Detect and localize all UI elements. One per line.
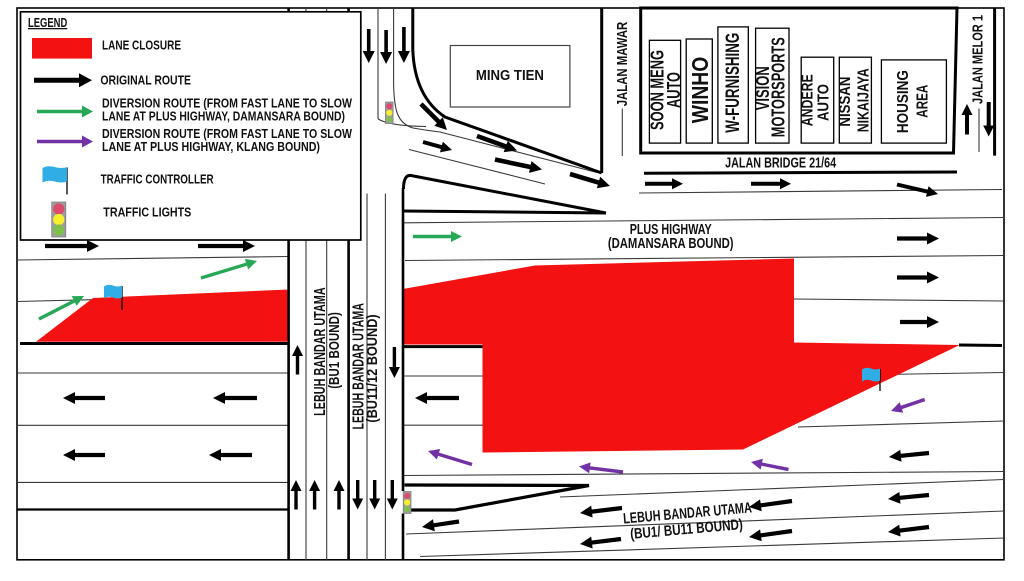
svg-text:LANE AT PLUS HIGHWAY, DAMANSAR: LANE AT PLUS HIGHWAY, DAMANSARA BOUND) bbox=[102, 110, 345, 124]
svg-text:W-FURNISHING: W-FURNISHING bbox=[722, 33, 744, 133]
svg-text:JALAN MELOR 1: JALAN MELOR 1 bbox=[970, 15, 987, 104]
svg-text:JALAN BRIDGE 21/64: JALAN BRIDGE 21/64 bbox=[725, 156, 836, 172]
svg-text:MING TIEN: MING TIEN bbox=[476, 68, 544, 84]
svg-text:NISSAN: NISSAN bbox=[837, 77, 854, 127]
svg-text:DIVERSION ROUTE (FROM FAST LAN: DIVERSION ROUTE (FROM FAST LANE TO SLOW bbox=[102, 127, 352, 141]
svg-text:TRAFFIC LIGHTS: TRAFFIC LIGHTS bbox=[103, 206, 191, 220]
svg-text:HOUSING: HOUSING bbox=[895, 70, 912, 133]
svg-text:(BU11/12 BOUND): (BU11/12 BOUND) bbox=[365, 314, 381, 422]
svg-text:(BU1 BOUND): (BU1 BOUND) bbox=[327, 312, 343, 389]
svg-text:JALAN MAWAR: JALAN MAWAR bbox=[614, 22, 631, 107]
svg-text:AREA: AREA bbox=[914, 85, 931, 118]
svg-text:AUTO: AUTO bbox=[663, 72, 684, 108]
svg-text:ORIGINAL ROUTE: ORIGINAL ROUTE bbox=[100, 73, 191, 87]
svg-text:LANE CLOSURE: LANE CLOSURE bbox=[102, 39, 181, 53]
svg-text:(DAMANSARA BOUND): (DAMANSARA BOUND) bbox=[608, 236, 734, 252]
svg-text:TRAFFIC CONTROLLER: TRAFFIC CONTROLLER bbox=[101, 173, 214, 187]
svg-text:WINHO: WINHO bbox=[687, 57, 713, 124]
svg-text:ANDERE: ANDERE bbox=[799, 74, 816, 126]
svg-text:AUTO: AUTO bbox=[816, 84, 833, 121]
svg-text:LANE AT PLUS HIGHWAY, KLANG BO: LANE AT PLUS HIGHWAY, KLANG BOUND) bbox=[102, 140, 320, 154]
svg-text:MOTORSPORTS: MOTORSPORTS bbox=[768, 37, 788, 137]
svg-text:DIVERSION ROUTE (FROM FAST LAN: DIVERSION ROUTE (FROM FAST LANE TO SLOW bbox=[102, 97, 352, 111]
svg-text:LEGEND: LEGEND bbox=[28, 15, 67, 30]
svg-text:NIKAIJAYA: NIKAIJAYA bbox=[855, 68, 872, 132]
